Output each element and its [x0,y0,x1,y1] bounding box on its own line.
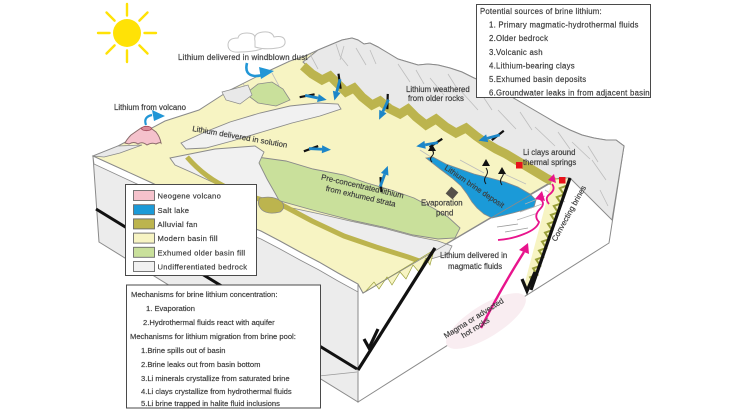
svg-text:Lithium delivered in: Lithium delivered in [440,251,507,260]
svg-text:1. Primary magmatic-hydrotherm: 1. Primary magmatic-hydrothermal fluids [489,21,639,30]
svg-text:Potential sources of brine lit: Potential sources of brine lithium: [480,7,602,16]
svg-text:Lithium delivered in windblown: Lithium delivered in windblown dust [178,53,308,62]
svg-text:6.Groundwater leaks in from ad: 6.Groundwater leaks in from adjacent bas… [489,89,650,98]
svg-text:Undifferentiated bedrock: Undifferentiated bedrock [158,263,248,272]
svg-text:Mechanisms for lithium migrati: Mechanisms for lithium migration from br… [130,332,296,341]
svg-text:2.Older bedrock: 2.Older bedrock [489,34,548,43]
svg-text:3.Li minerals crystallize from: 3.Li minerals crystallize from saturated… [141,374,290,383]
svg-text:1. Evaporation: 1. Evaporation [146,304,195,313]
svg-text:from older rocks: from older rocks [408,94,464,103]
svg-text:Exhumed older basin fill: Exhumed older basin fill [158,248,246,257]
svg-text:5.Li brine trapped in halite f: 5.Li brine trapped in halite fluid inclu… [141,399,280,408]
svg-text:magmatic fluids: magmatic fluids [448,262,502,271]
svg-text:Lithium weathered: Lithium weathered [406,85,470,94]
svg-text:3.Volcanic ash: 3.Volcanic ash [489,48,543,57]
svg-text:Modern basin fill: Modern basin fill [158,234,218,243]
svg-text:Li clays around: Li clays around [523,148,575,157]
svg-text:Alluvial fan: Alluvial fan [158,220,198,229]
svg-text:Lithium from volcano: Lithium from volcano [114,103,187,112]
svg-text:Evaporation: Evaporation [421,199,463,208]
svg-text:4.Lithium-bearing clays: 4.Lithium-bearing clays [489,61,575,70]
svg-text:2.Hydrothermal fluids react wi: 2.Hydrothermal fluids react with aquifer [143,318,275,327]
svg-text:4.Li clays crystallize from hy: 4.Li clays crystallize from hydrothermal… [141,387,292,396]
svg-text:pond: pond [436,209,453,218]
svg-text:5.Exhumed basin deposits: 5.Exhumed basin deposits [489,75,586,84]
svg-text:2.Brine leaks out from basin b: 2.Brine leaks out from basin bottom [141,360,260,369]
svg-text:Neogene volcano: Neogene volcano [158,192,222,201]
svg-text:1.Brine spills out of basin: 1.Brine spills out of basin [141,346,225,355]
svg-text:Salt lake: Salt lake [158,206,190,215]
svg-text:Mechanisms for brine lithium c: Mechanisms for brine lithium concentrati… [131,290,277,299]
svg-text:thermal springs: thermal springs [523,158,576,167]
